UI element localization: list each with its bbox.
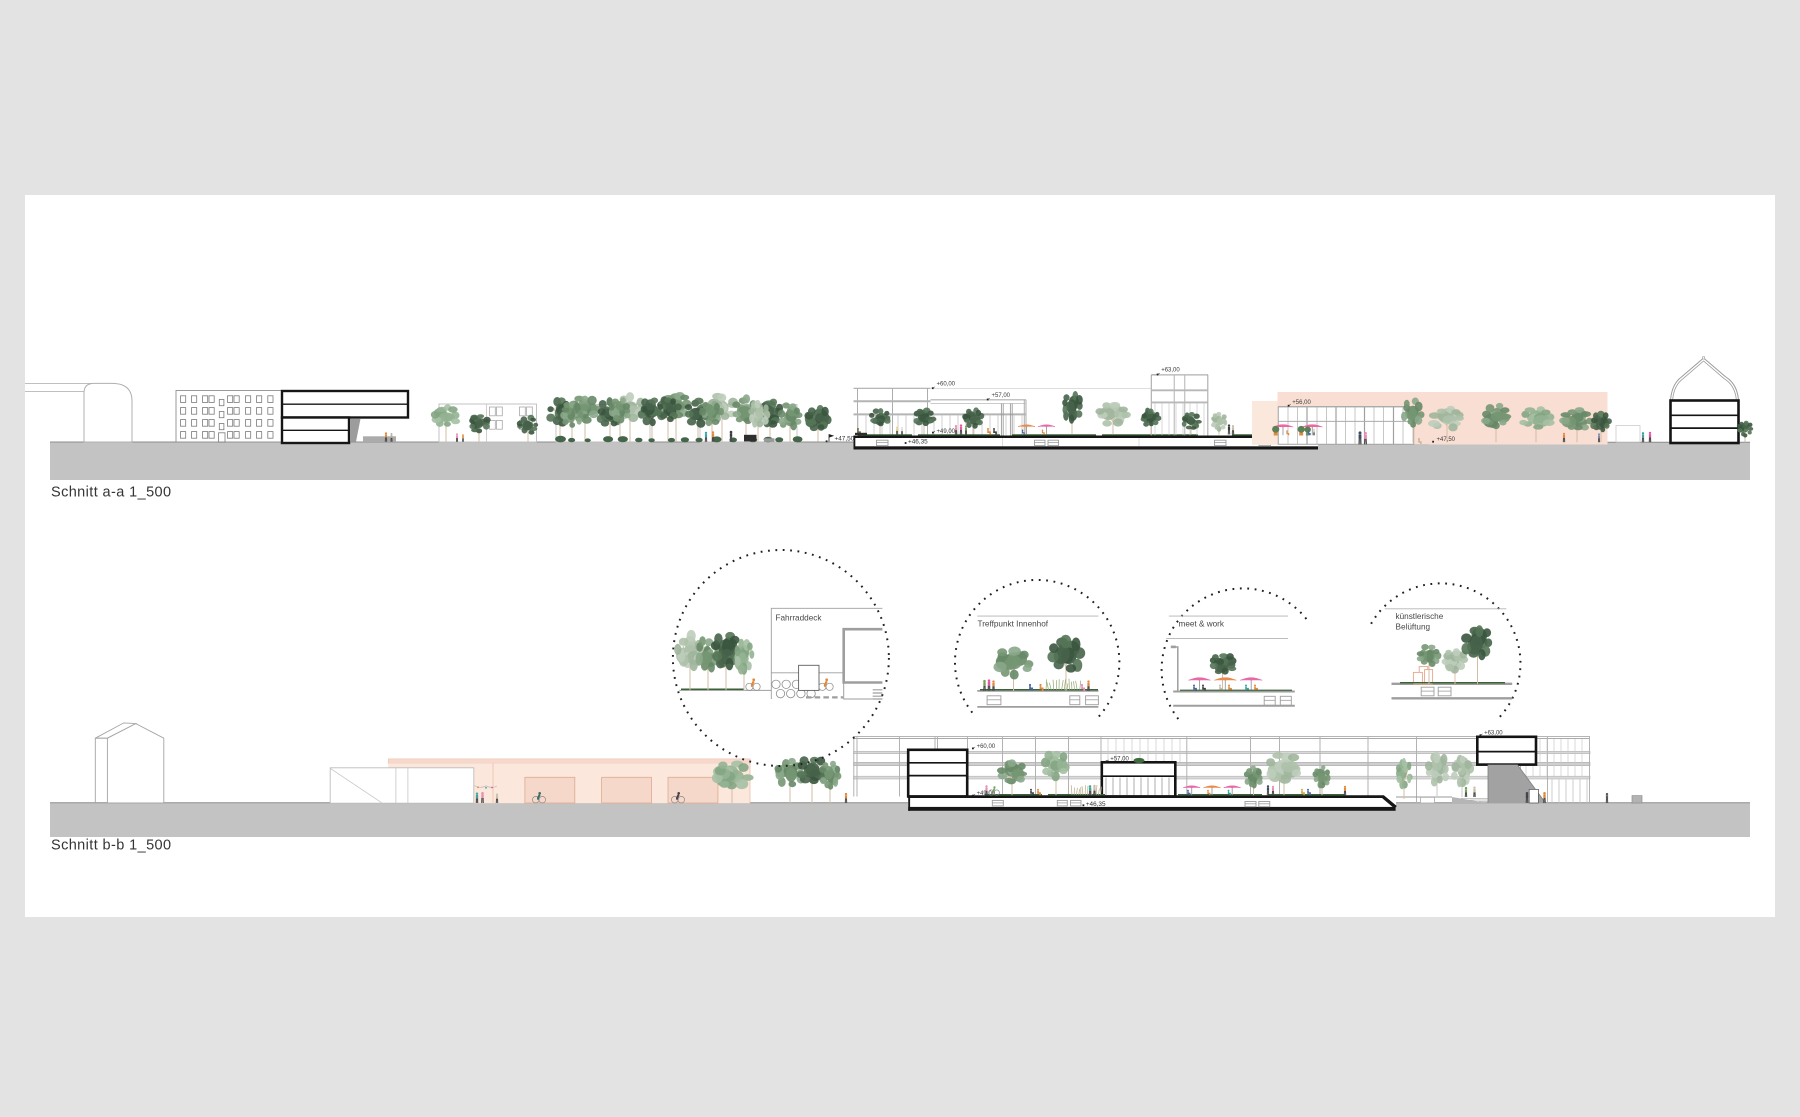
svg-text:Belüftung: Belüftung [1396,622,1431,631]
svg-text:Treffpunkt Innenhof: Treffpunkt Innenhof [978,619,1049,628]
svg-text:+46,35: +46,35 [1086,801,1106,808]
svg-text:+57,00: +57,00 [1110,757,1129,763]
svg-text:+47,50: +47,50 [835,436,855,443]
svg-text:+46,35: +46,35 [908,438,928,445]
svg-text:+63,00: +63,00 [1484,731,1503,737]
svg-text:Schnitt a-a 1_500: Schnitt a-a 1_500 [51,485,171,501]
svg-text:+47,50: +47,50 [1437,437,1456,443]
svg-text:Fahrraddeck: Fahrraddeck [776,613,823,622]
svg-text:meet & work: meet & work [1179,620,1225,629]
svg-text:+60,00: +60,00 [937,381,956,387]
svg-text:+57,00: +57,00 [992,393,1011,399]
svg-text:+63,00: +63,00 [1161,368,1180,374]
svg-text:künstlerische: künstlerische [1396,612,1444,621]
svg-text:+49,00: +49,00 [937,429,956,435]
svg-text:+60,00: +60,00 [977,744,996,750]
svg-text:Schnitt b-b 1_500: Schnitt b-b 1_500 [51,838,171,854]
svg-text:+56,00: +56,00 [1292,400,1311,406]
